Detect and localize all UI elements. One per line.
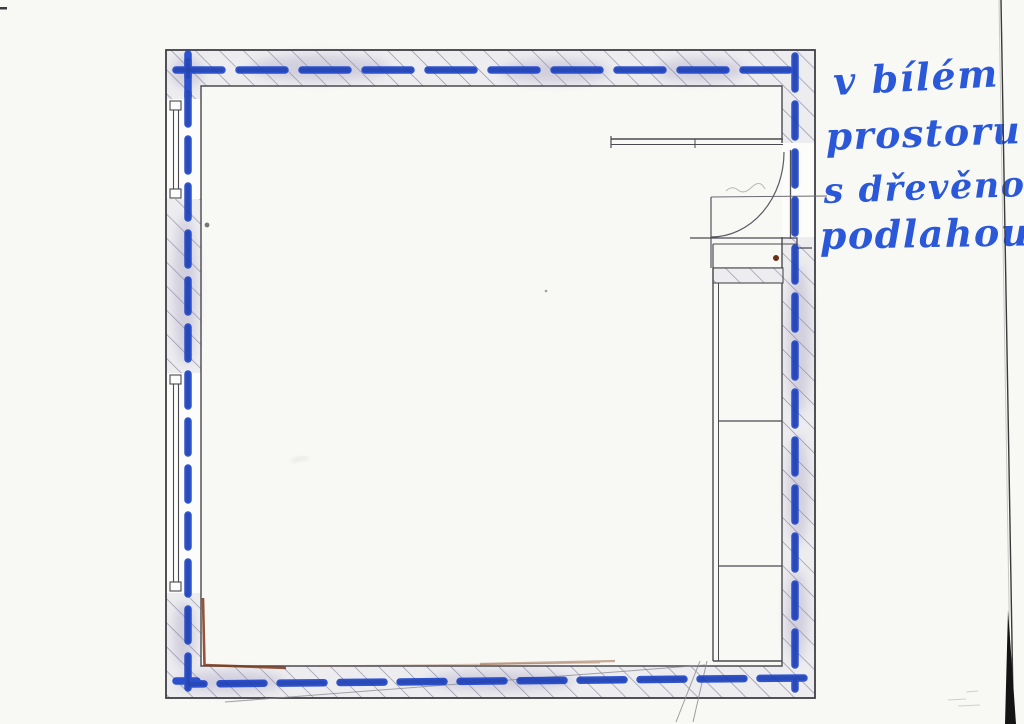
brown-dot-mark bbox=[773, 255, 779, 261]
floor-plan-canvas: v bílém prostoru s dřevěnou podlahou bbox=[0, 0, 1024, 724]
scanned-floor-plan-page: v bílém prostoru s dřevěnou podlahou bbox=[0, 0, 1024, 724]
window-upper-left-opening bbox=[166, 99, 201, 199]
note-line-3: s dřevěnou bbox=[822, 163, 1024, 212]
note-line-2: prostoru bbox=[825, 107, 1022, 159]
shelving-top-band bbox=[713, 268, 783, 283]
paper-background bbox=[0, 0, 1024, 724]
window-lower-left-opening bbox=[166, 373, 201, 593]
note-line-4: podlahou bbox=[819, 209, 1024, 258]
note-line-1: v bílém bbox=[832, 50, 1000, 104]
